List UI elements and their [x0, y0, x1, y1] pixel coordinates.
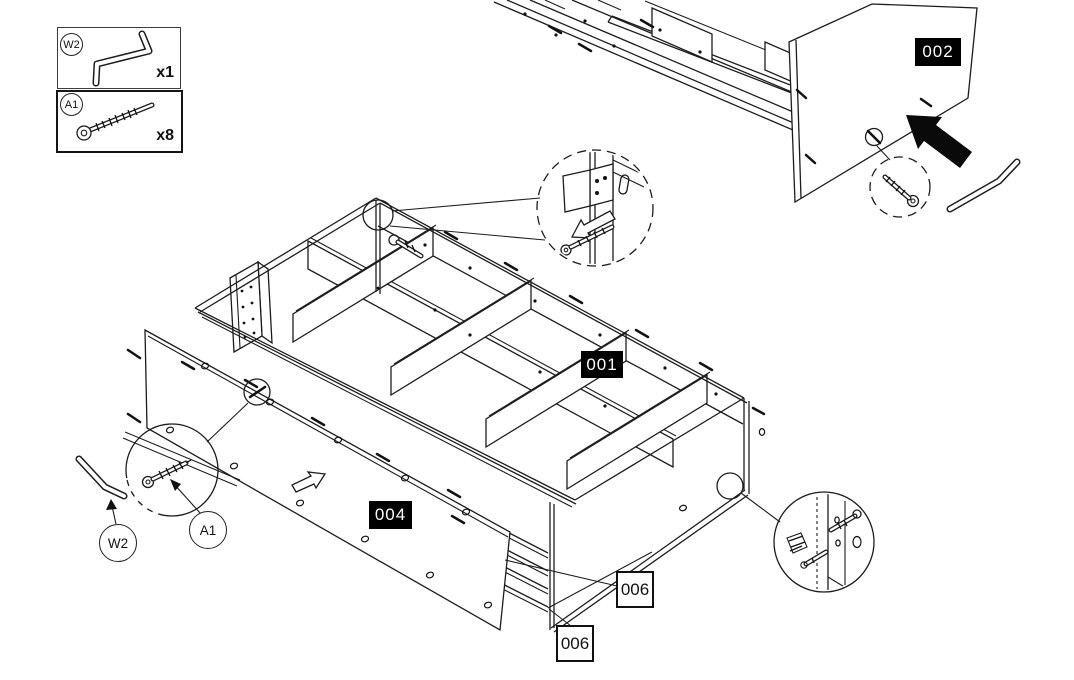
bracket-detail-callout: [537, 146, 653, 268]
legend-a1-label: A1: [65, 99, 78, 111]
allen-key-icon: [79, 459, 124, 496]
cam-screw-icon: [143, 460, 192, 488]
cam-lock-icon: [787, 533, 807, 553]
callout-pointers: [106, 479, 201, 524]
part-label-006-right: 006: [616, 571, 654, 608]
legend-w2-qty: x1: [140, 64, 174, 82]
side-panel-002: [789, 4, 977, 202]
part-label-006-bottom: 006: [556, 625, 594, 662]
corner-callout: [363, 198, 545, 256]
callout-w2-circle: W2: [99, 524, 137, 562]
part-label-002: 002: [915, 38, 961, 66]
legend-callout-a1: A1: [60, 93, 83, 116]
small-screw-icon: [801, 552, 826, 568]
cam-detail-callout: [774, 492, 874, 592]
direction-arrow-icon: [906, 115, 972, 168]
legend-a1-qty: x8: [140, 127, 174, 145]
callout-a1-circle: A1: [189, 511, 227, 549]
corner-callout-circle: [717, 473, 743, 499]
part-label-001: 001: [581, 351, 623, 378]
cam-screw-icon: [831, 510, 861, 530]
legend-callout-w2: W2: [60, 33, 83, 56]
front-panel-drawing: [128, 330, 510, 630]
leader-line: [741, 493, 780, 522]
allen-key-icon: [950, 162, 1017, 209]
part-label-004: 004: [369, 501, 412, 529]
callout-w2-label: W2: [108, 536, 128, 551]
bracket-plate: [590, 164, 613, 206]
assembly-diagram-page: W2 A1 x1 x8 002 001 004 006 006 W2 A1: [0, 0, 1074, 680]
screw-detail-callout-top: [870, 146, 930, 217]
callout-a1-label: A1: [200, 523, 217, 538]
legend-w2-label: W2: [63, 39, 80, 51]
